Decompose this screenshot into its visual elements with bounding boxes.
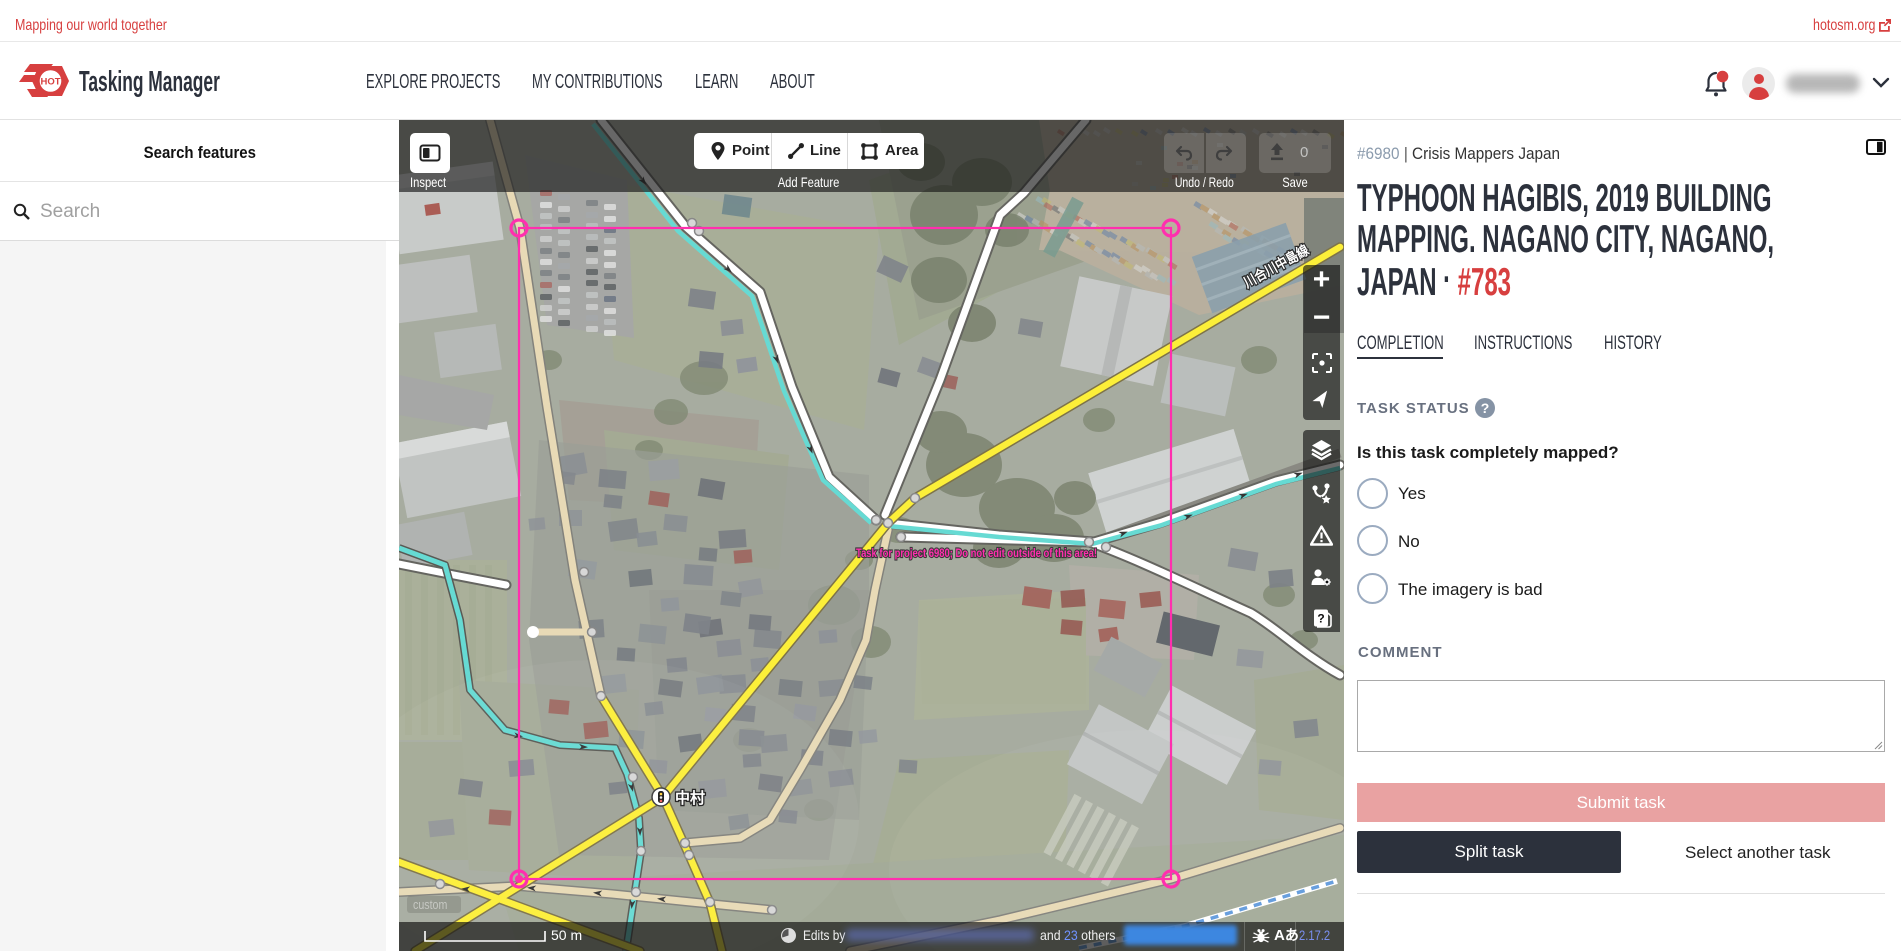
svg-text:中村: 中村: [675, 789, 705, 807]
svg-text:?: ?: [1317, 612, 1324, 626]
svg-text:Task for project 6980; Do not: Task for project 6980; Do not edit outsi…: [856, 546, 1097, 560]
svg-text:HOT: HOT: [40, 77, 60, 88]
